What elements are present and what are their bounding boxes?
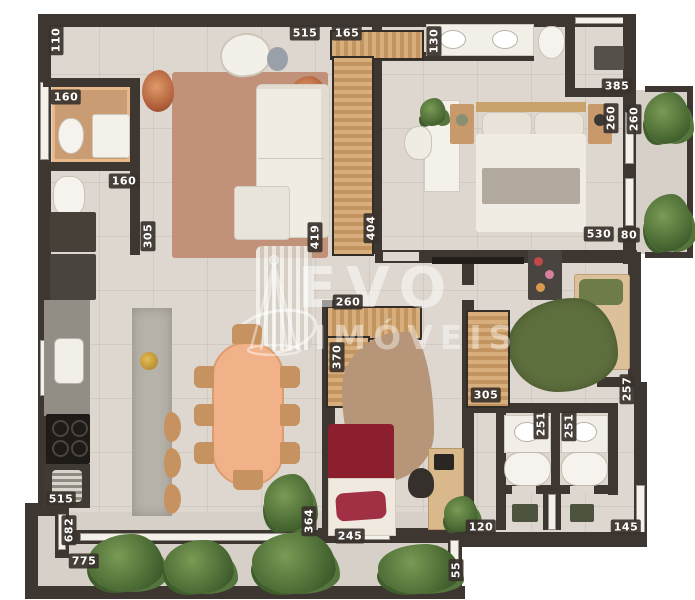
washer: [50, 212, 96, 252]
plant: [88, 534, 164, 592]
doormat: [512, 504, 538, 522]
burner: [71, 420, 88, 437]
dining-chair: [194, 442, 214, 464]
dimension-label: 364: [302, 506, 317, 536]
service-counter: [594, 46, 624, 70]
dried-plant: [142, 70, 174, 112]
balcony-rail: [645, 252, 693, 258]
shelf-item: [534, 257, 543, 266]
lamp: [456, 114, 468, 126]
dimension-label: 775: [69, 554, 99, 569]
dimension-label: 120: [466, 520, 496, 535]
pillow-red: [335, 490, 387, 521]
dining-chair: [233, 470, 263, 490]
bed-headboard: [476, 102, 586, 112]
dimension-label: 385: [602, 79, 632, 94]
pouf: [267, 47, 288, 71]
tv-console: [432, 257, 524, 264]
bathtub: [561, 452, 608, 486]
wall: [551, 403, 560, 495]
laptop: [434, 454, 454, 470]
dimension-label: 130: [427, 26, 442, 56]
dimension-label: 257: [620, 374, 635, 404]
dimension-label: 251: [534, 409, 549, 439]
burner: [71, 440, 88, 457]
plant: [644, 194, 692, 252]
wall: [43, 162, 140, 171]
dimension-label: 305: [471, 388, 501, 403]
shelf-item: [545, 270, 554, 279]
bed-blanket: [482, 168, 580, 204]
doormat: [570, 504, 594, 522]
wall: [608, 403, 618, 495]
fridge: [50, 254, 96, 300]
shelf-item: [536, 283, 545, 292]
dimension-label: 530: [584, 227, 614, 242]
sink: [53, 176, 85, 216]
dimension-label: 251: [562, 411, 577, 441]
burner: [52, 440, 69, 457]
dimension-label: 515: [46, 492, 76, 507]
wall: [130, 78, 140, 170]
dimension-label: 370: [330, 342, 345, 372]
desk-chair: [404, 126, 432, 160]
burner: [52, 420, 69, 437]
dimension-label: 404: [364, 213, 379, 243]
fruit-bowl: [140, 352, 158, 370]
sink: [492, 30, 518, 49]
door: [548, 494, 556, 530]
toilet: [58, 118, 84, 154]
dimension-label: 80: [618, 228, 640, 243]
desk-chair: [408, 468, 434, 498]
dimension-label: 305: [141, 221, 156, 251]
dining-chair: [280, 366, 300, 388]
toilet: [538, 26, 565, 59]
dining-chair: [194, 366, 214, 388]
plant: [420, 98, 446, 126]
dining-chair: [280, 442, 300, 464]
wall: [556, 494, 561, 530]
dimension-label: 110: [49, 25, 64, 55]
plant: [644, 92, 690, 144]
window: [40, 82, 49, 160]
plant: [164, 540, 234, 594]
dimension-label: 260: [604, 103, 619, 133]
wall: [462, 263, 474, 285]
plant: [252, 532, 336, 594]
brand-logo-icon: [243, 252, 305, 356]
door: [512, 486, 536, 494]
dimension-label: 245: [335, 529, 365, 544]
floor-plan: EVO IMÓVEIS 1101601603055151651303852602…: [0, 0, 695, 600]
dimension-label: 55: [449, 559, 464, 581]
sofa-cushion-line: [258, 158, 324, 159]
kitchen-sink: [54, 338, 84, 384]
dining-chair: [280, 404, 300, 426]
dimension-label: 145: [611, 520, 641, 535]
vanity-sink: [92, 114, 130, 158]
dimension-label: 160: [109, 174, 139, 189]
sink: [440, 30, 466, 49]
dining-table: [212, 342, 284, 486]
dimension-label: 260: [333, 295, 363, 310]
wall: [25, 503, 38, 599]
dimension-label: 419: [308, 222, 323, 252]
bathtub: [504, 452, 551, 486]
dimension-label: 515: [290, 26, 320, 41]
dimension-label: 165: [332, 26, 362, 41]
door: [383, 252, 419, 261]
window: [625, 178, 634, 226]
wall: [43, 78, 140, 87]
dimension-label: 260: [627, 104, 642, 134]
kitchen-island: [132, 308, 172, 516]
dimension-label: 682: [62, 515, 77, 545]
dimension-label: 160: [51, 90, 81, 105]
wall: [565, 20, 575, 95]
door: [570, 486, 594, 494]
ottoman: [234, 186, 290, 240]
dining-chair: [194, 404, 214, 426]
